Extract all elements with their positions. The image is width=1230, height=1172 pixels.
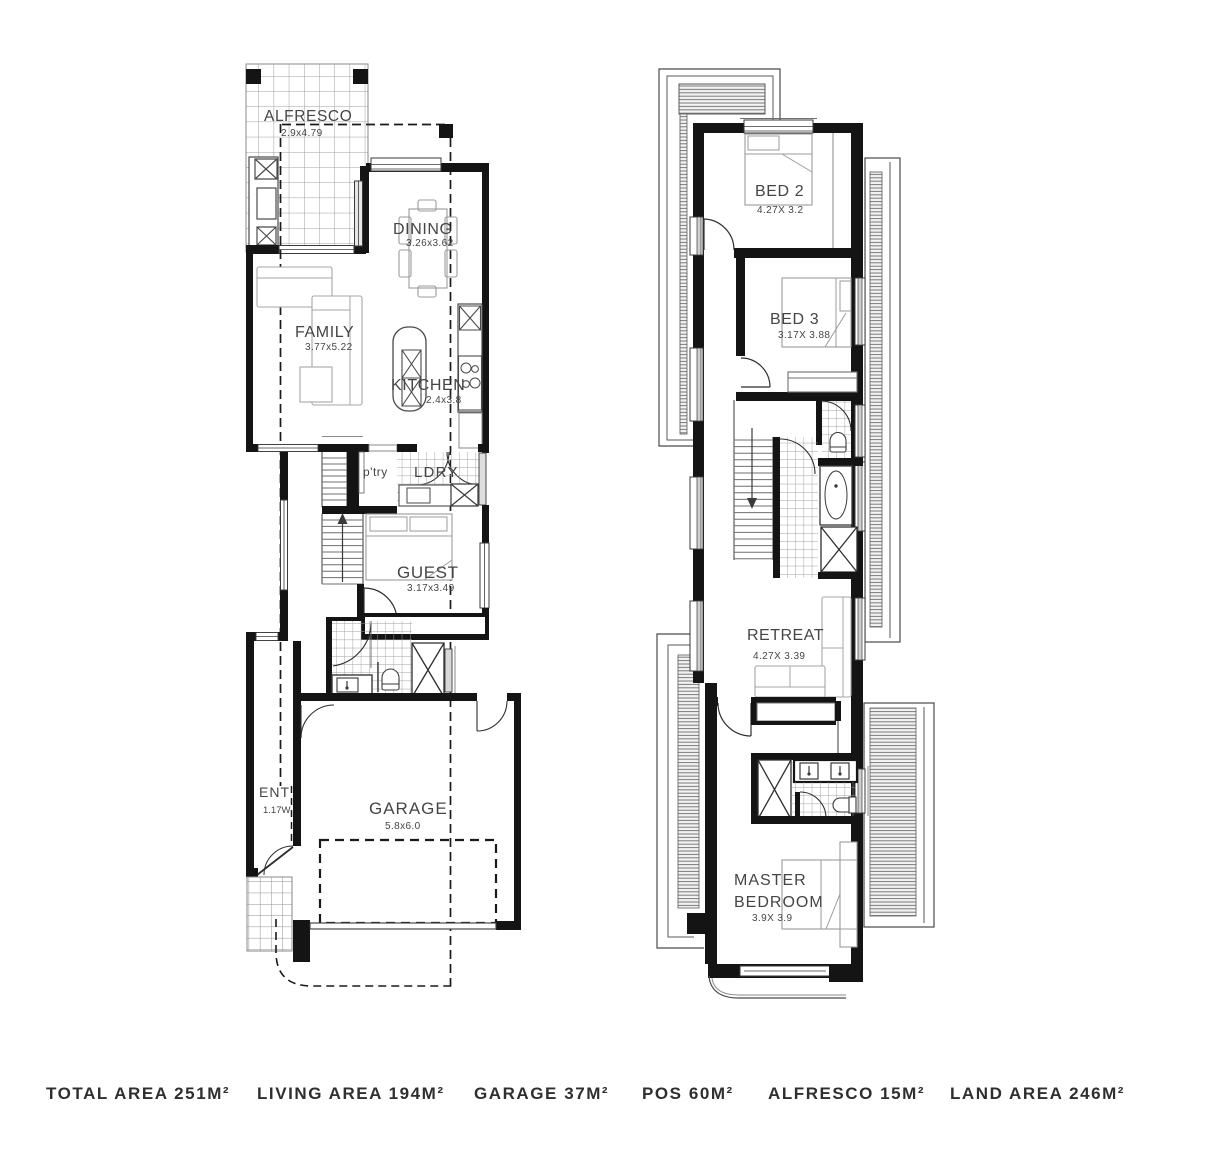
svg-text:ALFRESCO 15M²: ALFRESCO 15M²: [768, 1084, 925, 1103]
svg-text:p'try: p'try: [363, 465, 388, 479]
svg-text:3.77x5.22: 3.77x5.22: [305, 342, 353, 353]
svg-text:5.8x6.0: 5.8x6.0: [385, 821, 421, 832]
svg-text:3.17X 3.88: 3.17X 3.88: [778, 330, 830, 341]
svg-text:FAMILY: FAMILY: [295, 324, 354, 341]
svg-text:RETREAT: RETREAT: [747, 627, 824, 644]
svg-text:3.17x3.49: 3.17x3.49: [407, 583, 455, 594]
svg-text:3.9X 3.9: 3.9X 3.9: [752, 913, 792, 924]
svg-text:4.27X 3.39: 4.27X 3.39: [753, 651, 805, 662]
svg-text:MASTER: MASTER: [734, 872, 807, 889]
svg-text:BED 3: BED 3: [770, 311, 819, 328]
svg-text:KITCHEN: KITCHEN: [391, 377, 465, 394]
svg-text:GARAGE: GARAGE: [369, 799, 448, 818]
svg-text:LIVING AREA 194M²: LIVING AREA 194M²: [257, 1084, 445, 1103]
svg-text:1.17W: 1.17W: [263, 805, 290, 816]
svg-text:DINING: DINING: [393, 221, 453, 238]
svg-text:TOTAL AREA 251M²: TOTAL AREA 251M²: [46, 1084, 230, 1103]
svg-text:POS 60M²: POS 60M²: [642, 1084, 734, 1103]
svg-text:3.26x3.62: 3.26x3.62: [406, 238, 454, 249]
svg-text:LAND AREA 246M²: LAND AREA 246M²: [950, 1084, 1125, 1103]
svg-text:ENT: ENT: [259, 784, 290, 800]
svg-text:LDRY: LDRY: [414, 464, 459, 481]
svg-text:2.4x3.8: 2.4x3.8: [426, 395, 462, 406]
svg-text:GUEST: GUEST: [397, 563, 459, 582]
svg-text:4.27X 3.2: 4.27X 3.2: [757, 205, 803, 216]
svg-text:GARAGE 37M²: GARAGE 37M²: [474, 1084, 609, 1103]
svg-text:2.9x4.79: 2.9x4.79: [281, 128, 323, 139]
svg-text:BEDROOM: BEDROOM: [734, 894, 824, 911]
svg-text:ALFRESCO: ALFRESCO: [264, 108, 352, 125]
svg-text:BED 2: BED 2: [755, 183, 804, 200]
